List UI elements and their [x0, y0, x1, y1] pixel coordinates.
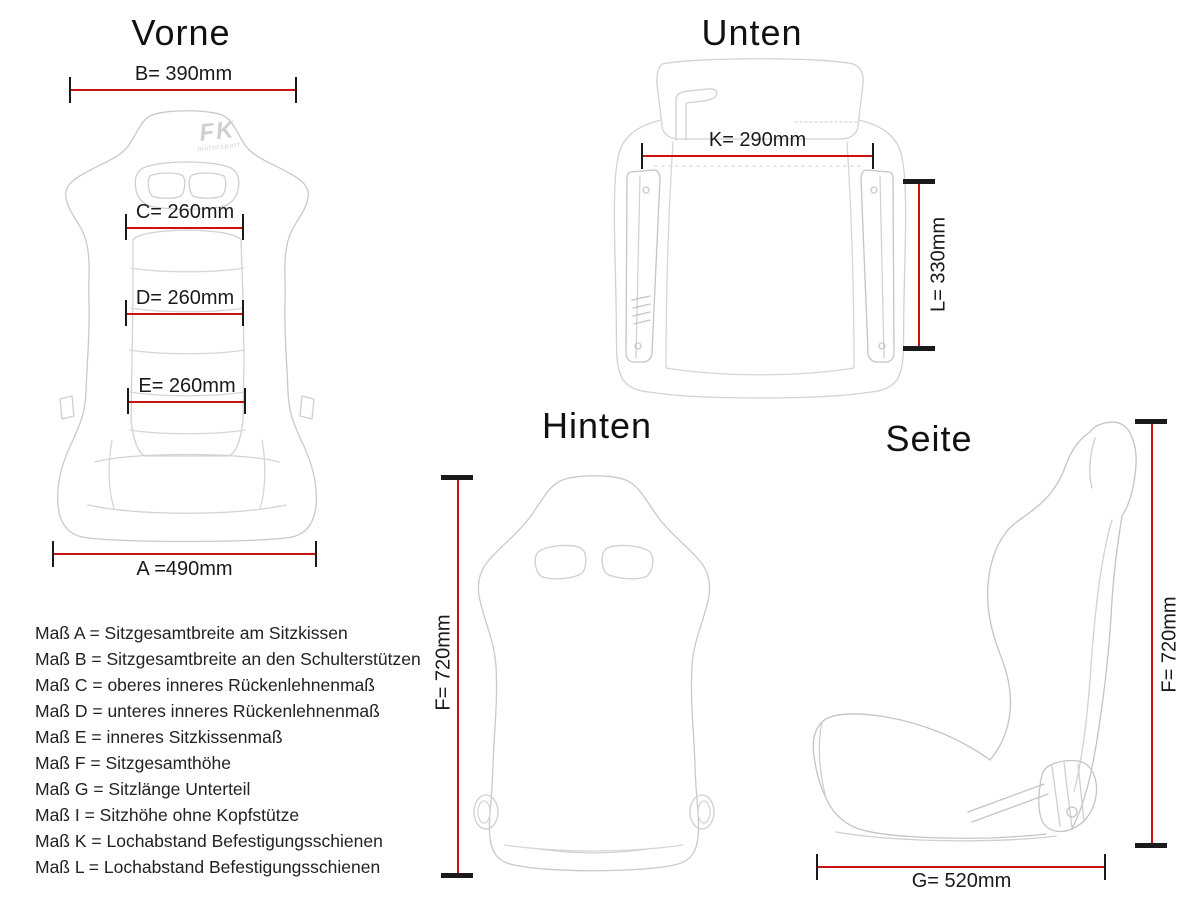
legend-item-f: Maß F = Sitzgesamthöhe: [35, 750, 421, 776]
legend-item-k: Maß K = Lochabstand Befestigungsschienen: [35, 828, 421, 854]
dim-label-k: K= 290mm: [642, 129, 873, 152]
seite-seat-drawing: [813, 422, 1136, 841]
dim-label-l: L= 330mm: [928, 205, 951, 325]
dim-label-a: A =490mm: [53, 558, 316, 581]
fk-motorsport-logo: FK motorsport: [194, 118, 240, 153]
vorne-seat-drawing: [58, 111, 317, 542]
dim-label-g: G= 520mm: [817, 870, 1106, 893]
legend-item-e: Maß E = inneres Sitzkissenmaß: [35, 724, 421, 750]
dim-line-l: [918, 182, 920, 349]
dim-label-c: C= 260mm: [110, 201, 260, 224]
dim-line-a: [53, 553, 316, 555]
dim-line-d: [126, 313, 243, 315]
dim-label-b: B= 390mm: [70, 63, 297, 86]
unten-seat-drawing: [614, 59, 905, 398]
dim-line-e: [128, 401, 245, 403]
dim-line-g: [817, 866, 1106, 868]
view-title-seite: Seite: [809, 418, 1049, 460]
dim-tick: [441, 475, 473, 480]
dim-tick: [903, 179, 935, 184]
view-title-unten: Unten: [632, 12, 872, 54]
view-title-hinten: Hinten: [477, 405, 717, 447]
legend: Maß A = Sitzgesamtbreite am Sitzkissen M…: [35, 620, 421, 880]
dim-label-e: E= 260mm: [112, 375, 262, 398]
dim-label-f-hinten: F= 720mm: [433, 603, 456, 723]
legend-item-c: Maß C = oberes inneres Rückenlehnenmaß: [35, 672, 421, 698]
dim-line-k: [642, 155, 873, 157]
dim-label-d: D= 260mm: [110, 287, 260, 310]
legend-item-b: Maß B = Sitzgesamtbreite an den Schulter…: [35, 646, 421, 672]
legend-item-i: Maß I = Sitzhöhe ohne Kopfstütze: [35, 802, 421, 828]
legend-item-g: Maß G = Sitzlänge Unterteil: [35, 776, 421, 802]
dim-tick: [441, 873, 473, 878]
seat-dimension-diagram: FK motorsport Vorne Unten Hinten Seite B…: [0, 0, 1200, 900]
dim-label-f-seite: F= 720mm: [1159, 585, 1182, 705]
dim-line-c: [126, 227, 243, 229]
dim-line-f-hinten: [457, 478, 459, 876]
dim-line-b: [70, 89, 297, 91]
dim-line-f-seite: [1151, 422, 1153, 846]
legend-item-d: Maß D = unteres inneres Rückenlehnenmaß: [35, 698, 421, 724]
legend-item-l: Maß L = Lochabstand Befestigungsschienen: [35, 854, 421, 880]
dim-tick: [1135, 419, 1167, 424]
hinten-seat-drawing: [474, 476, 714, 871]
dim-tick: [1135, 843, 1167, 848]
legend-item-a: Maß A = Sitzgesamtbreite am Sitzkissen: [35, 620, 421, 646]
view-title-vorne: Vorne: [61, 12, 301, 54]
dim-tick: [903, 346, 935, 351]
